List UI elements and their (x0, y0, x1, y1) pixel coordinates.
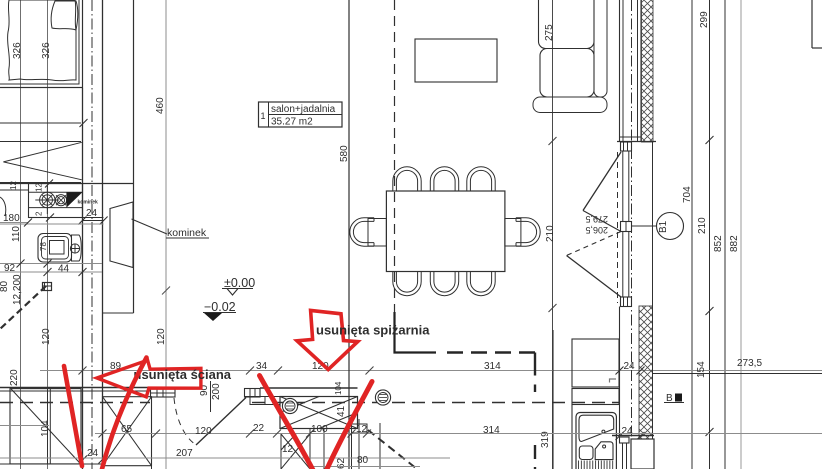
svg-text:279,5: 279,5 (585, 214, 608, 224)
svg-text:275: 275 (544, 24, 555, 41)
svg-text:852: 852 (713, 235, 724, 252)
svg-text:12: 12 (35, 183, 44, 192)
svg-text:206,5: 206,5 (585, 225, 608, 235)
svg-text:210: 210 (545, 225, 556, 242)
svg-text:−0.02: −0.02 (204, 300, 236, 314)
svg-text:24: 24 (87, 448, 99, 459)
svg-text:12: 12 (9, 181, 18, 190)
svg-text:12: 12 (282, 444, 294, 455)
svg-text:154: 154 (696, 361, 707, 378)
svg-text:120: 120 (41, 328, 52, 345)
svg-text:314: 314 (484, 361, 501, 372)
svg-text:299: 299 (699, 11, 710, 28)
svg-text:kominek: kominek (167, 227, 207, 239)
svg-text:78: 78 (39, 242, 48, 251)
svg-text:kominek: kominek (78, 200, 99, 206)
svg-text:210: 210 (697, 217, 708, 234)
svg-text:580: 580 (339, 145, 350, 162)
svg-text:salon+jadalnia: salon+jadalnia (271, 104, 336, 115)
svg-text:62: 62 (336, 457, 347, 469)
svg-text:326: 326 (41, 42, 52, 59)
svg-text:220: 220 (9, 369, 20, 386)
svg-text:200: 200 (211, 383, 222, 400)
svg-text:80: 80 (0, 280, 10, 292)
svg-text:22: 22 (253, 423, 265, 434)
svg-text:12: 12 (356, 424, 368, 435)
svg-text:207: 207 (176, 448, 193, 459)
svg-text:35.27 m2: 35.27 m2 (271, 117, 313, 128)
svg-text:usunięta spiżarnia: usunięta spiżarnia (316, 323, 430, 338)
svg-text:460: 460 (155, 97, 166, 114)
svg-text:92: 92 (4, 263, 16, 274)
svg-text:104: 104 (334, 381, 343, 395)
svg-text:usunięta ściana: usunięta ściana (134, 367, 232, 382)
svg-text:44: 44 (58, 264, 70, 275)
svg-text:273,5: 273,5 (737, 358, 762, 369)
svg-text:34: 34 (256, 361, 268, 372)
svg-text:2: 2 (35, 211, 44, 216)
svg-text:±0.00: ±0.00 (224, 276, 255, 290)
svg-text:882: 882 (729, 235, 740, 252)
svg-text:100: 100 (311, 424, 328, 435)
svg-text:704: 704 (682, 186, 693, 203)
svg-text:110: 110 (11, 226, 22, 242)
svg-text:314: 314 (483, 425, 500, 436)
svg-text:65: 65 (121, 424, 133, 435)
svg-text:326: 326 (12, 42, 23, 59)
svg-text:1: 1 (261, 111, 266, 121)
svg-text:24: 24 (624, 361, 636, 372)
svg-text:41: 41 (336, 405, 347, 417)
svg-text:24: 24 (86, 208, 98, 219)
svg-text:120: 120 (195, 426, 212, 437)
svg-text:B1: B1 (658, 220, 669, 233)
svg-text:12,200: 12,200 (12, 274, 23, 305)
svg-text:80: 80 (357, 455, 369, 466)
svg-text:120: 120 (156, 328, 167, 345)
